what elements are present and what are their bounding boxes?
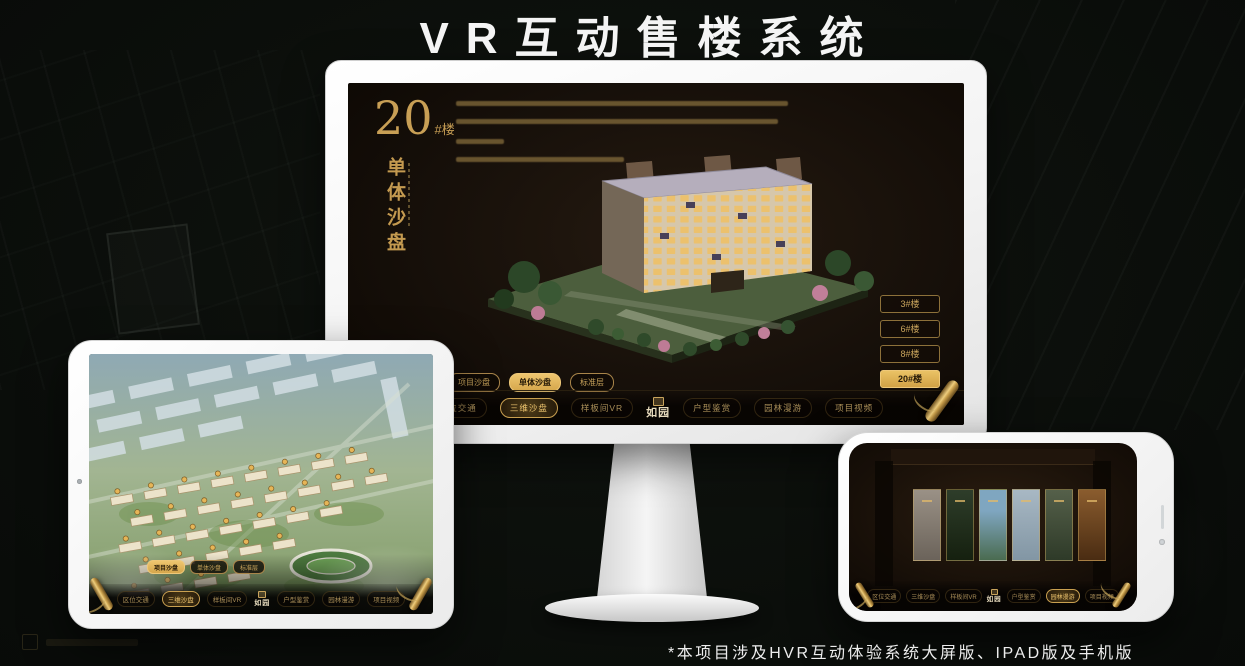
watermark-icon: [22, 634, 38, 650]
building-number-suffix: #楼: [435, 122, 455, 137]
background-plaque: [106, 223, 200, 334]
gallery-panel[interactable]: [946, 489, 974, 561]
seal-icon: [258, 591, 266, 598]
floor-button-8[interactable]: 8#楼: [880, 345, 940, 363]
phone-nav-item-floorplans[interactable]: 户型鉴赏: [1007, 589, 1041, 603]
page-title: VR互动售楼系统: [320, 2, 980, 66]
gallery-panel[interactable]: [1012, 489, 1040, 561]
footer-note: *本项目涉及HVR互动体验系统大屏版、IPAD版及手机版: [668, 639, 1134, 663]
nav-item-floorplans[interactable]: 户型鉴赏: [683, 398, 741, 418]
corner-watermark: [22, 634, 138, 650]
watermark-text-blur: [46, 639, 138, 646]
building-3d-render: [476, 141, 896, 373]
building-number: 20: [374, 91, 433, 145]
nav-item-project-video[interactable]: 项目视频: [825, 398, 883, 418]
seal-icon: [991, 589, 998, 595]
ipad-nav-bar: 区位交通 三维沙盘 样板间VR 如园 户型鉴赏 园林漫游 项目视频: [89, 584, 433, 614]
phone-brand-logo-text: 如园: [987, 597, 1002, 604]
ipad-nav-item-3d-sandbox[interactable]: 三维沙盘: [162, 591, 200, 607]
phone-device: 区位交通 三维沙盘 样板间VR 如园 户型鉴赏 园林漫游 项目视频: [838, 432, 1174, 622]
ipad-nav-item-floorplans[interactable]: 户型鉴赏: [277, 591, 315, 607]
ipad-tab-standard-floor[interactable]: 标准层: [233, 560, 265, 574]
ipad-brand-logo-text: 如园: [254, 600, 270, 607]
room-beam: [891, 449, 1095, 465]
ipad-tab-single-sandbox[interactable]: 单体沙盘: [190, 560, 228, 574]
nav-item-garden-roam[interactable]: 园林漫游: [754, 398, 812, 418]
phone-nav-item-garden-roam[interactable]: 园林漫游: [1046, 589, 1080, 603]
phone-screen: 区位交通 三维沙盘 样板间VR 如园 户型鉴赏 园林漫游 项目视频: [849, 443, 1137, 611]
floor-button-3[interactable]: 3#楼: [880, 295, 940, 313]
nav-item-showroom-vr[interactable]: 样板间VR: [571, 398, 633, 418]
phone-nav-item-showroom-vr[interactable]: 样板间VR: [945, 589, 981, 603]
ipad-brand-logo: 如园: [254, 591, 270, 607]
ipad-nav-item-location[interactable]: 区位交通: [117, 591, 155, 607]
aerial-masterplan-render: [89, 354, 433, 614]
description-line-blur: [456, 101, 788, 106]
background-city-texture: [955, 0, 1245, 430]
panel-subtitle: 单体沙盘: [381, 157, 408, 257]
brand-logo: 如园: [646, 397, 670, 419]
room-pillar: [875, 461, 893, 586]
subtitle-english-blur: [408, 163, 410, 229]
monitor-stand-neck: [597, 440, 707, 598]
brand-logo-text: 如园: [646, 408, 670, 419]
ipad-camera-icon: [77, 479, 82, 484]
ipad-screen: 项目沙盘 单体沙盘 标准层 区位交通 三维沙盘 样板间VR 如园 户型鉴赏 园林…: [89, 354, 433, 614]
gallery-panel[interactable]: [913, 489, 941, 561]
gallery-panel[interactable]: [1045, 489, 1073, 561]
poster-stage: VR互动售楼系统 20#楼 单体沙盘: [0, 0, 1245, 666]
phone-camera-icon: [1159, 539, 1165, 545]
phone-nav-bar: 区位交通 三维沙盘 样板间VR 如园 户型鉴赏 园林漫游 项目视频: [849, 581, 1137, 611]
background-map-texture: [0, 50, 320, 390]
phone-brand-logo: 如园: [987, 589, 1002, 604]
ipad-nav-item-showroom-vr[interactable]: 样板间VR: [207, 591, 248, 607]
gallery-panel[interactable]: [1078, 489, 1106, 561]
seal-icon: [653, 397, 664, 406]
phone-nav-item-3d-sandbox[interactable]: 三维沙盘: [906, 589, 940, 603]
gallery-panel[interactable]: [979, 489, 1007, 561]
ipad-tab-project-sandbox[interactable]: 项目沙盘: [147, 560, 185, 574]
ipad-nav-item-garden-roam[interactable]: 园林漫游: [322, 591, 360, 607]
ipad-sandbox-subtabs: 项目沙盘 单体沙盘 标准层: [147, 560, 265, 574]
nav-item-3d-sandbox[interactable]: 三维沙盘: [500, 398, 558, 418]
phone-speaker-icon: [1161, 505, 1164, 529]
monitor-stand-base: [545, 594, 759, 622]
description-line-blur: [456, 119, 778, 124]
floor-button-6[interactable]: 6#楼: [880, 320, 940, 338]
ipad-device: 项目沙盘 单体沙盘 标准层 区位交通 三维沙盘 样板间VR 如园 户型鉴赏 园林…: [68, 340, 454, 629]
floor-button-20[interactable]: 20#楼: [880, 370, 940, 388]
building-heading: 20#楼: [374, 95, 455, 141]
